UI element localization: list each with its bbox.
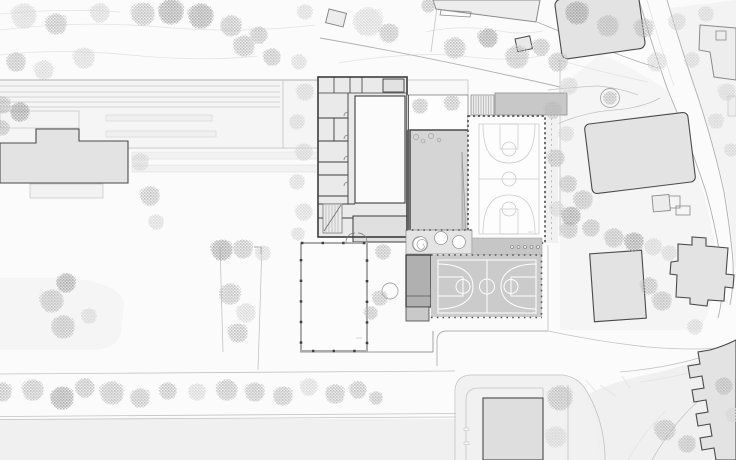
tree (548, 52, 568, 72)
tree (188, 383, 206, 401)
tree (56, 273, 76, 293)
bottom-roadway (0, 419, 456, 460)
building-east-cross (670, 237, 734, 306)
tree (582, 219, 600, 237)
tree (6, 52, 26, 72)
tree (45, 13, 67, 35)
south-room (353, 216, 407, 242)
north-court-fence (407, 80, 468, 95)
garage-east (652, 195, 670, 212)
building-south (483, 398, 543, 460)
tree-circle (435, 232, 448, 245)
tree (130, 388, 150, 408)
building-west-annex (30, 184, 103, 198)
tree (559, 175, 577, 193)
tree (678, 435, 696, 453)
tree (375, 244, 391, 260)
tree (273, 386, 293, 406)
building-east-1 (584, 112, 696, 194)
tree-circle (453, 236, 466, 249)
dark-storage-annex (406, 255, 431, 307)
exterior-stair (471, 95, 494, 115)
tree (289, 174, 305, 190)
tree (148, 214, 164, 230)
site-plan-svg (0, 0, 736, 460)
school-complex (301, 77, 567, 351)
tree (603, 91, 617, 105)
tree (220, 15, 242, 37)
platform (132, 165, 318, 172)
sports-hall-floor (468, 116, 545, 243)
tree (233, 239, 253, 259)
tree (50, 386, 74, 410)
tree (647, 52, 667, 72)
north-rooms (383, 79, 404, 92)
tree (573, 190, 593, 210)
gymnasium (410, 130, 470, 232)
tree (565, 1, 589, 25)
platform (106, 115, 212, 121)
tree (325, 384, 345, 404)
platform (106, 131, 216, 137)
pavilion-annex (301, 243, 367, 351)
platform (132, 152, 318, 159)
site-plan (0, 0, 736, 460)
hall-large-room (355, 96, 405, 203)
tree (51, 315, 75, 339)
building-east-2 (590, 250, 647, 321)
storage-annex-lower (406, 307, 429, 321)
tree (219, 283, 241, 305)
